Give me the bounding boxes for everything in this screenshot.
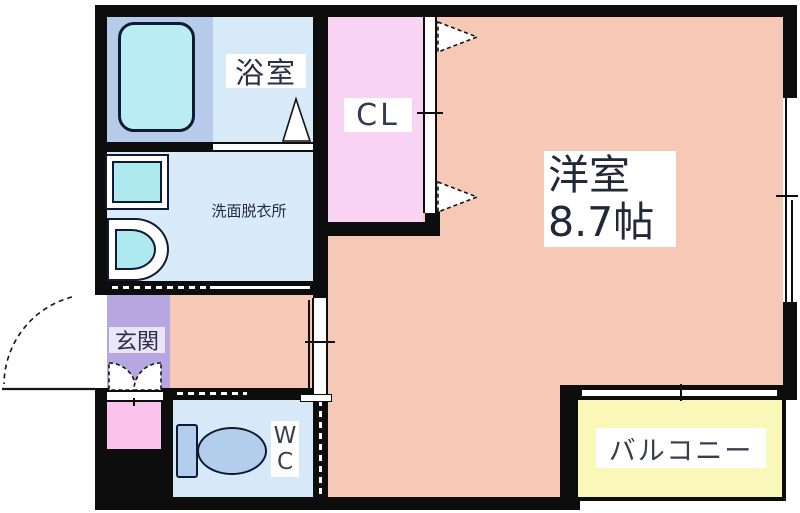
room-sliding-door bbox=[312, 298, 328, 396]
balcony-label: バルコニー bbox=[596, 428, 766, 468]
corridor-floor bbox=[170, 295, 313, 388]
closet-door-tick bbox=[417, 112, 443, 114]
window-pane-line bbox=[785, 98, 787, 302]
wall-closet-corner bbox=[425, 210, 440, 236]
toilet-tank bbox=[176, 424, 198, 478]
bathroom-label: 浴室 bbox=[226, 54, 306, 88]
main-room-label: 洋室 8.7帖 bbox=[544, 151, 676, 247]
vanity-bowl bbox=[115, 229, 156, 270]
wall-balcony-left bbox=[560, 385, 578, 505]
wc-door-dash bbox=[177, 392, 247, 395]
wall-center-dash-line bbox=[319, 400, 322, 495]
toilet-bowl bbox=[197, 427, 267, 475]
wc-label: W C bbox=[271, 421, 299, 477]
entrance-door-opening bbox=[95, 295, 107, 388]
bathtub bbox=[118, 22, 195, 132]
main-room-window bbox=[783, 98, 797, 302]
room-door-track bbox=[308, 300, 310, 396]
washbasin bbox=[105, 154, 169, 210]
washroom-wall-line bbox=[210, 286, 310, 289]
entry-door-arc bbox=[4, 297, 72, 384]
washroom-sliding-door-dash bbox=[112, 286, 210, 289]
room-door-tick bbox=[305, 341, 335, 343]
floor-plan: 浴室 洗面脱衣所 CL 洋室 8.7帖 玄関 W C バルコニー bbox=[0, 0, 800, 513]
wc-letter-w: W bbox=[274, 423, 297, 449]
wall-bottom bbox=[95, 497, 580, 510]
window-pane-line bbox=[791, 200, 793, 302]
closet-sliding-door bbox=[423, 17, 437, 213]
main-room-name: 洋室 bbox=[548, 152, 630, 199]
wall-bath-washroom bbox=[107, 142, 213, 152]
entrance-threshold-tick bbox=[133, 398, 135, 406]
wall-wc-top bbox=[170, 388, 315, 400]
wall-left-upper bbox=[95, 5, 107, 295]
entrance-label: 玄関 bbox=[109, 327, 165, 353]
balcony-window-tick bbox=[680, 384, 682, 401]
wall-washroom-bottom bbox=[107, 281, 313, 295]
closet-label: CL bbox=[344, 98, 412, 132]
wall-right-upper bbox=[783, 5, 797, 98]
entrance-threshold bbox=[105, 390, 165, 402]
room-door-threshold bbox=[300, 394, 332, 402]
main-room-size: 8.7帖 bbox=[548, 199, 654, 246]
wall-left-lower bbox=[95, 388, 107, 510]
washbasin-bowl bbox=[112, 161, 162, 203]
wall-top bbox=[95, 5, 795, 17]
wc-letter-c: C bbox=[277, 449, 293, 475]
entrance-cabinet bbox=[106, 402, 161, 449]
washroom-label: 洗面脱衣所 bbox=[196, 200, 302, 220]
main-room-window-tick bbox=[776, 195, 798, 197]
wall-closet-bottom bbox=[328, 222, 440, 236]
wall-center-upper bbox=[313, 5, 328, 300]
bathroom-door-sill bbox=[213, 142, 313, 152]
wall-center-lower bbox=[313, 396, 328, 497]
